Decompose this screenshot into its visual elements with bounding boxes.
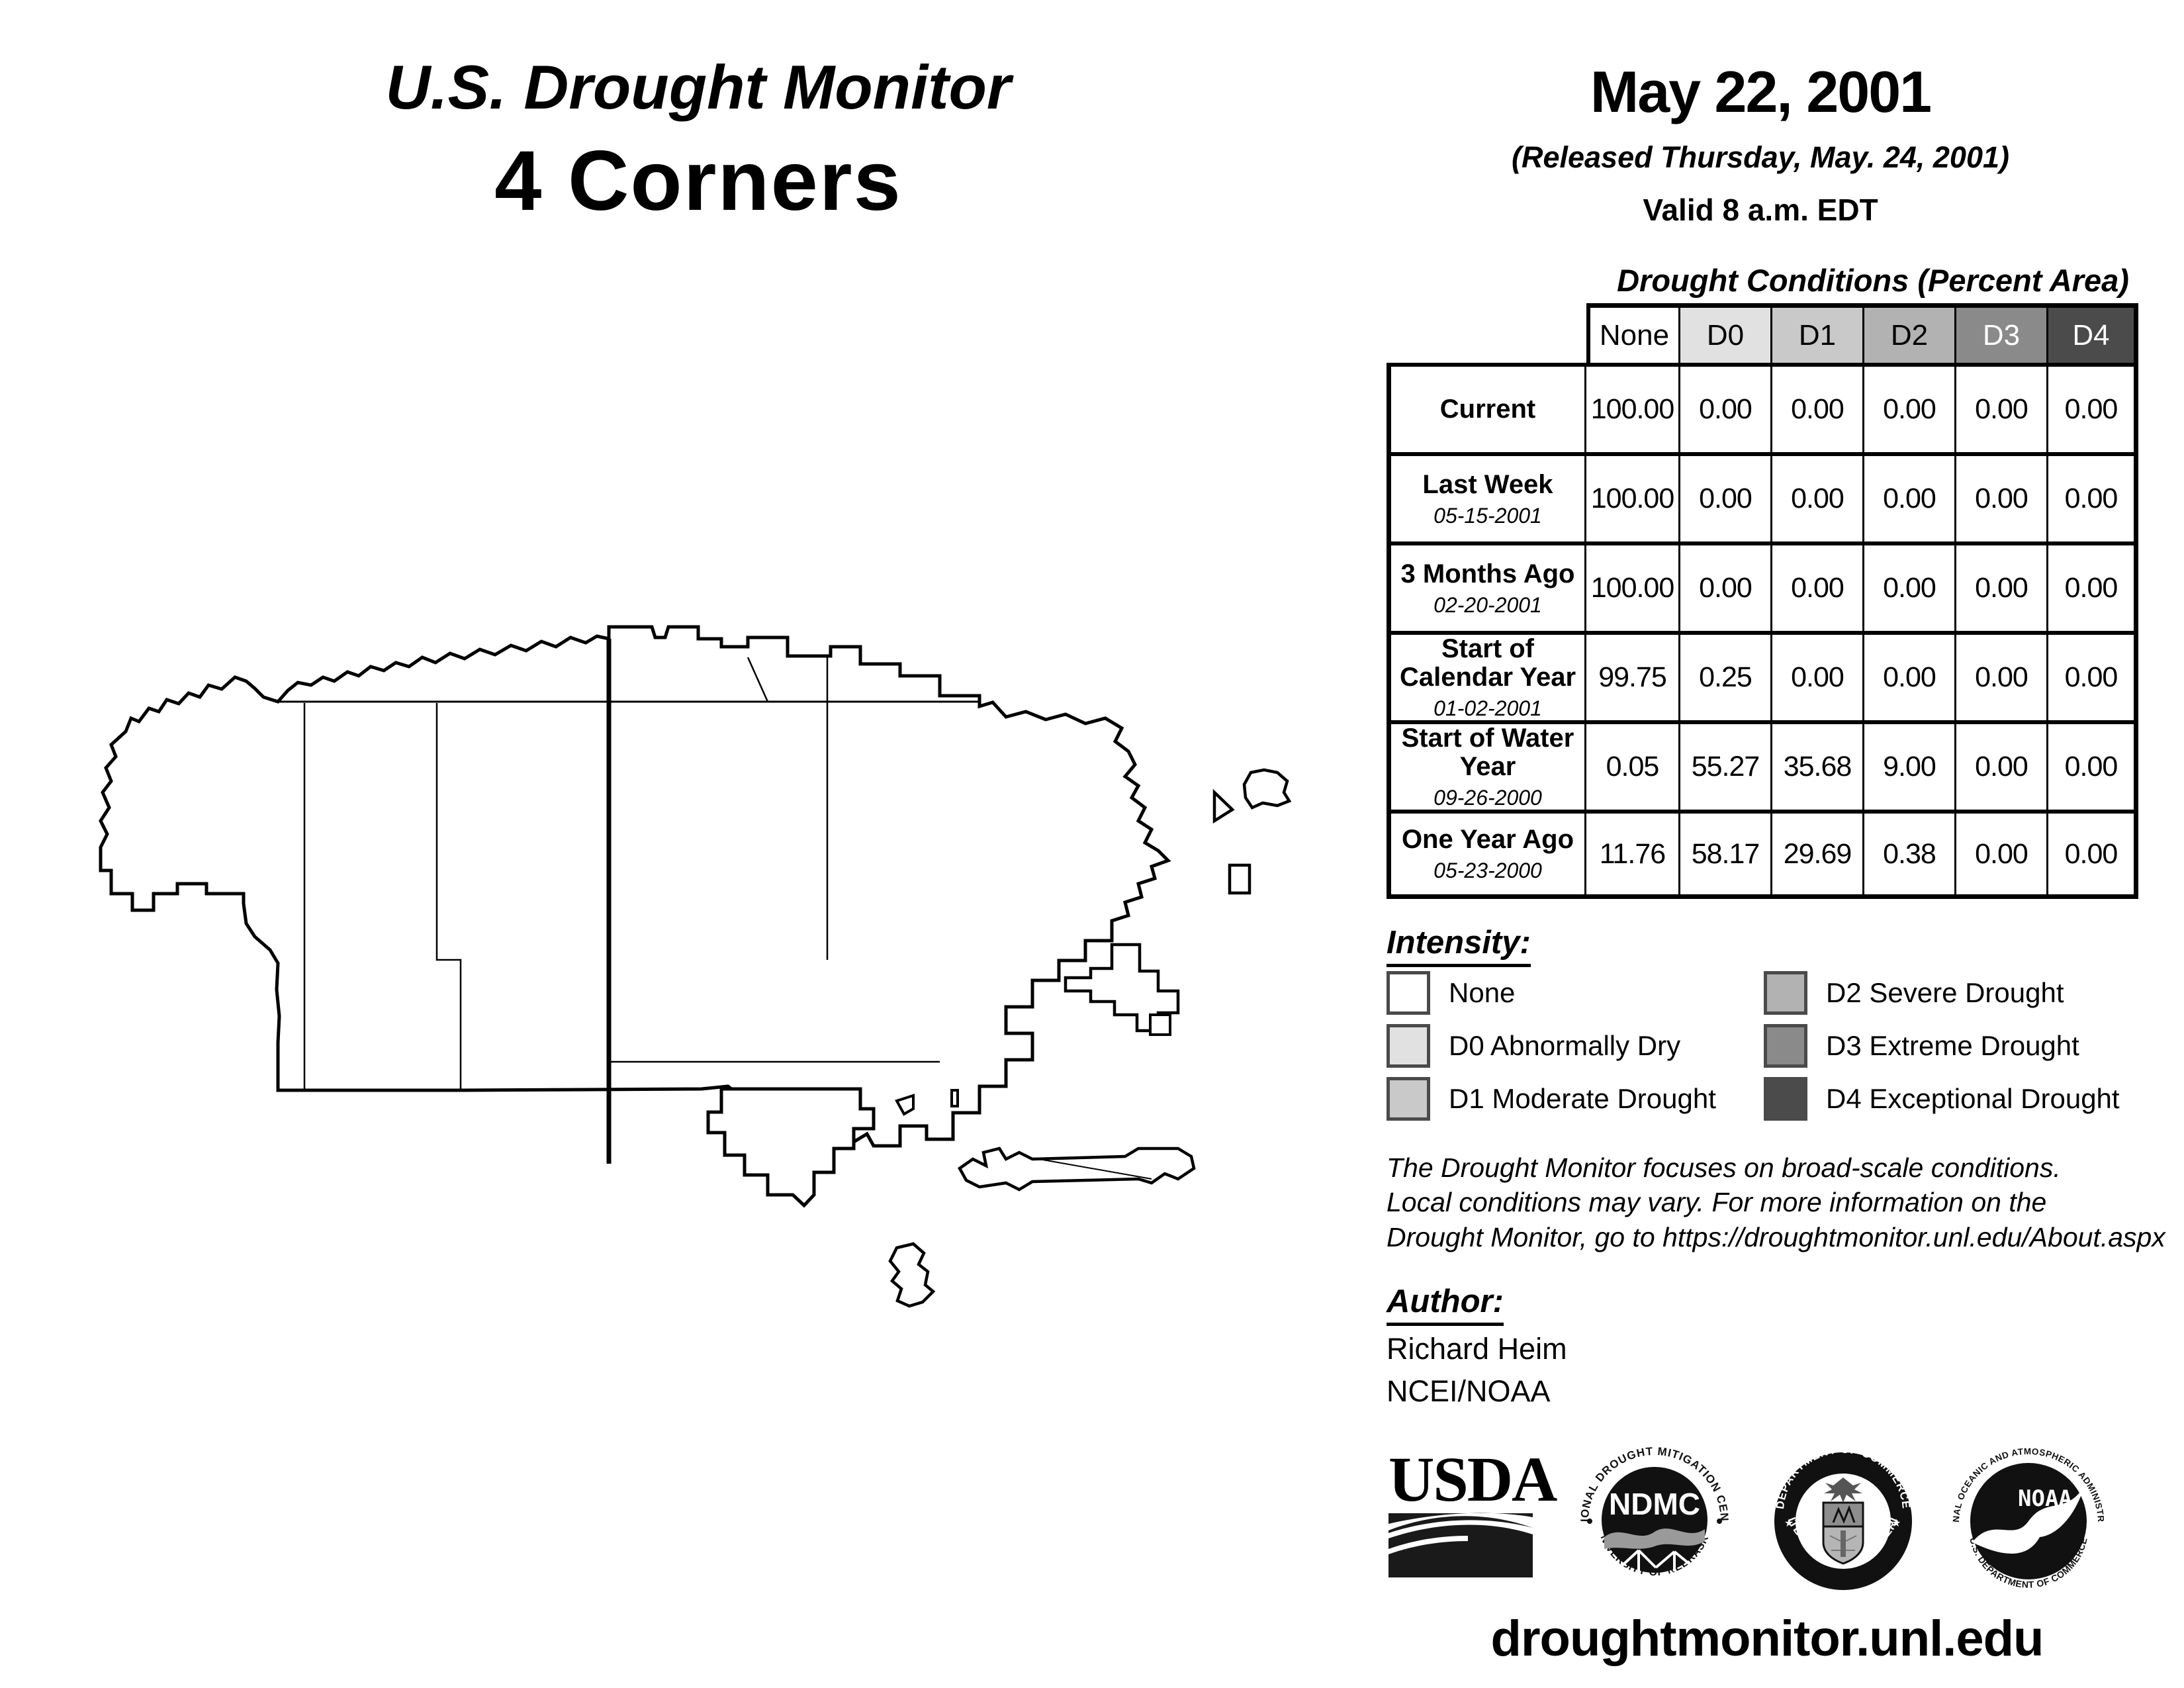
region-title: 4 Corners (199, 132, 1198, 230)
map-island-tick (952, 1090, 958, 1106)
table-value: 0.00 (1862, 631, 1954, 720)
table-value: 0.25 (1678, 631, 1770, 720)
table-value: 0.00 (1954, 631, 2046, 720)
legend-column-left: None D0 Abnormally Dry D1 Moderate Droug… (1387, 972, 1757, 1131)
table-value: 0.00 (1954, 452, 2046, 541)
table-value: 0.00 (1678, 363, 1770, 452)
table-value: 0.00 (2046, 631, 2138, 720)
table-value: 100.00 (1586, 452, 1678, 541)
table-value: 0.00 (1770, 452, 1862, 541)
table-value: 0.00 (1954, 810, 2046, 899)
agency-logos: USDA NATIONAL DROUGHT MITIGATION CENTER (1377, 1436, 2158, 1609)
table-value: 0.38 (1862, 810, 1954, 899)
row-date: 02-20-2001 (1433, 594, 1542, 617)
map-island-square (1230, 865, 1250, 893)
noaa-center-text: NOAA (2018, 1485, 2072, 1512)
released-date: (Released Thursday, May. 24, 2001) (1363, 140, 2158, 175)
intensity-heading: Intensity: (1387, 924, 1531, 967)
table-value: 0.00 (1862, 363, 1954, 452)
table-value: 29.69 (1770, 810, 1862, 899)
table-title: Drought Conditions (Percent Area) (1588, 262, 2158, 299)
table-value: 11.76 (1586, 810, 1678, 899)
map-southeast-shape (960, 1149, 1194, 1190)
row-label: Current (1387, 363, 1586, 452)
table-value: 0.00 (1678, 452, 1770, 541)
table-value: 100.00 (1586, 363, 1678, 452)
column-header-d1: D1 (1770, 303, 1862, 363)
map-main-outline (101, 627, 1168, 1146)
d3-swatch (1764, 1024, 1807, 1068)
row-label: Start of Water Year09-26-2000 (1387, 720, 1586, 810)
table-row: Current 100.00 0.00 0.00 0.00 0.00 0.00 (1387, 363, 2141, 452)
disclaimer-text: The Drought Monitor focuses on broad-sca… (1387, 1150, 2174, 1254)
d1-swatch (1387, 1077, 1430, 1121)
row-label: 3 Months Ago02-20-2001 (1387, 541, 1586, 631)
row-label: Start of Calendar Year01-02-2001 (1387, 631, 1586, 720)
d2-swatch (1764, 971, 1807, 1015)
legend-item-none: None (1387, 972, 1757, 1014)
map-svg (93, 619, 1304, 1374)
row-label-text: Start of Calendar Year (1395, 635, 1580, 692)
row-date: 05-23-2000 (1433, 859, 1542, 882)
row-date: 09-26-2000 (1433, 786, 1542, 810)
table-value: 58.17 (1678, 810, 1770, 899)
table-value: 0.00 (2046, 363, 2138, 452)
noaa-logo-svg: NATIONAL OCEANIC AND ATMOSPHERIC ADMINIS… (1947, 1436, 2109, 1602)
table-row: Start of Calendar Year01-02-2001 99.75 0… (1387, 631, 2141, 720)
map-island-triangle (1214, 792, 1232, 821)
table-value: 0.05 (1586, 720, 1678, 810)
table-value: 0.00 (1678, 541, 1770, 631)
map-island-small-square (1150, 1015, 1170, 1035)
legend-item-d0: D0 Abnormally Dry (1387, 1025, 1757, 1067)
disclaimer-line: Drought Monitor, go to https://droughtmo… (1387, 1220, 2174, 1254)
table-value: 99.75 (1586, 631, 1678, 720)
legend-column-right: D2 Severe Drought D3 Extreme Drought D4 … (1764, 972, 2134, 1131)
table-value: 0.00 (2046, 541, 2138, 631)
table-value: 0.00 (1954, 720, 2046, 810)
column-header-d2: D2 (1862, 303, 1954, 363)
table-value: 55.27 (1678, 720, 1770, 810)
footer-url: droughtmonitor.unl.edu (1396, 1610, 2138, 1667)
legend-label: D2 Severe Drought (1826, 977, 2064, 1009)
page-title: U.S. Drought Monitor (199, 52, 1198, 123)
row-label-text: Start of Water Year (1395, 724, 1580, 781)
column-header-d4: D4 (2046, 303, 2138, 363)
none-swatch (1387, 971, 1430, 1015)
department-of-commerce-logo: DEPARTMENT OF COMMERCE UNITED STATES OF … (1767, 1436, 1919, 1605)
column-header-d0: D0 (1678, 303, 1770, 363)
legend-item-d4: D4 Exceptional Drought (1764, 1078, 2134, 1120)
d4-swatch (1764, 1077, 1807, 1121)
map-south-blob (890, 1244, 933, 1306)
table-value: 0.00 (1770, 631, 1862, 720)
row-date: 01-02-2001 (1433, 697, 1542, 720)
table-value: 0.00 (1954, 363, 2046, 452)
table-value: 0.00 (1770, 541, 1862, 631)
four-corners-map (93, 619, 1304, 1374)
column-header-none: None (1586, 303, 1678, 363)
d0-swatch (1387, 1024, 1430, 1068)
table-header-row: None D0 D1 D2 D3 D4 (1586, 303, 2141, 363)
ndmc-center-text: NDMC (1609, 1487, 1700, 1521)
drought-monitor-report: U.S. Drought Monitor 4 Corners May 22, 2… (0, 0, 2184, 1688)
row-date: 05-15-2001 (1433, 504, 1542, 528)
map-island-oval (1244, 770, 1289, 808)
usda-logo-text: USDA (1388, 1451, 1533, 1508)
table-value: 9.00 (1862, 720, 1954, 810)
table-value: 0.00 (1954, 541, 2046, 631)
table-value: 35.68 (1770, 720, 1862, 810)
table-value: 0.00 (2046, 452, 2138, 541)
legend-label: D4 Exceptional Drought (1826, 1083, 2120, 1115)
legend-item-d3: D3 Extreme Drought (1764, 1025, 2134, 1067)
author-heading: Author: (1387, 1283, 1504, 1326)
usda-logo: USDA (1388, 1451, 1533, 1581)
row-label-text: Current (1440, 395, 1535, 424)
table-value: 0.00 (1862, 541, 1954, 631)
table-value: 0.00 (2046, 720, 2138, 810)
legend-label: None (1449, 977, 1515, 1009)
noaa-logo: NATIONAL OCEANIC AND ATMOSPHERIC ADMINIS… (1947, 1436, 2109, 1605)
legend-item-d1: D1 Moderate Drought (1387, 1078, 1757, 1120)
legend-label: D0 Abnormally Dry (1449, 1030, 1680, 1062)
legend-item-d2: D2 Severe Drought (1764, 972, 2134, 1014)
date-block: May 22, 2001 (Released Thursday, May. 24… (1363, 58, 2158, 228)
valid-time: Valid 8 a.m. EDT (1363, 192, 2158, 228)
table-value: 0.00 (2046, 810, 2138, 899)
row-label-text: Last Week (1422, 471, 1553, 499)
doc-logo-svg: DEPARTMENT OF COMMERCE UNITED STATES OF … (1767, 1436, 1919, 1602)
title-block: U.S. Drought Monitor 4 Corners (199, 52, 1198, 230)
doc-star-right: ★ (1891, 1518, 1901, 1529)
doc-star-left: ★ (1784, 1518, 1794, 1529)
author-name: Richard Heim (1387, 1332, 1567, 1366)
disclaimer-line: The Drought Monitor focuses on broad-sca… (1387, 1150, 2174, 1185)
row-label: One Year Ago05-23-2000 (1387, 810, 1586, 899)
ndmc-logo-svg: NATIONAL DROUGHT MITIGATION CENTER UNIVE… (1575, 1436, 1734, 1602)
row-label-text: 3 Months Ago (1401, 560, 1575, 588)
legend-label: D3 Extreme Drought (1826, 1030, 2079, 1062)
disclaimer-line: Local conditions may vary. For more info… (1387, 1185, 2174, 1219)
row-label-text: One Year Ago (1402, 825, 1574, 854)
drought-conditions-table: None D0 D1 D2 D3 D4 Current 100.00 0.00 … (1387, 303, 2141, 899)
ndmc-logo: NATIONAL DROUGHT MITIGATION CENTER UNIVE… (1575, 1436, 1734, 1605)
report-date: May 22, 2001 (1363, 58, 2158, 126)
table-row: Start of Water Year09-26-2000 0.05 55.27… (1387, 720, 2141, 810)
table-row: Last Week05-15-2001 100.00 0.00 0.00 0.0… (1387, 452, 2141, 541)
table-row: One Year Ago05-23-2000 11.76 58.17 29.69… (1387, 810, 2141, 899)
table-value: 100.00 (1586, 541, 1678, 631)
author-organization: NCEI/NOAA (1387, 1374, 1551, 1409)
column-header-d3: D3 (1954, 303, 2046, 363)
map-south-cluster (708, 1089, 874, 1205)
usda-swoosh-icon (1388, 1508, 1533, 1577)
table-value: 0.00 (1862, 452, 1954, 541)
legend-label: D1 Moderate Drought (1449, 1083, 1716, 1115)
table-value: 0.00 (1770, 363, 1862, 452)
table-row: 3 Months Ago02-20-2001 100.00 0.00 0.00 … (1387, 541, 2141, 631)
row-label: Last Week05-15-2001 (1387, 452, 1586, 541)
